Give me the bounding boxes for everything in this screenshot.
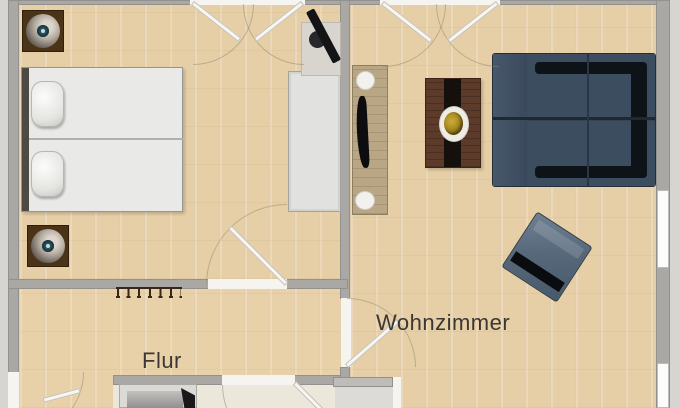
window-living-upper[interactable] [657, 190, 669, 268]
sideboard[interactable] [352, 65, 388, 215]
room-label-flur: Flur [142, 348, 182, 374]
room-label-wohnzimmer: Wohnzimmer [376, 310, 510, 336]
mattress-divider [29, 138, 183, 140]
wardrobe[interactable] [288, 71, 341, 212]
nightstand-bottom[interactable] [27, 225, 69, 267]
wall-top [8, 0, 657, 5]
sofa[interactable] [492, 53, 656, 187]
floor-plan: Wohnzimmer Flur [0, 0, 680, 408]
window-living-lower[interactable] [657, 363, 669, 408]
double-bed[interactable] [21, 67, 183, 212]
pillow [31, 81, 64, 127]
decor-plate [355, 191, 375, 210]
lamp-icon [31, 229, 65, 263]
room-lower-right-floor [335, 387, 393, 408]
wall-bedroom-living [340, 0, 350, 299]
wall-left [8, 0, 19, 408]
coat-rack-icon[interactable] [116, 287, 182, 301]
sofa-seam [587, 54, 589, 186]
headboard [22, 68, 29, 211]
decor-plate [356, 71, 375, 90]
wall-lower-right-top [333, 377, 393, 387]
door-opening-flur-south [222, 375, 295, 385]
sofa-armrest [493, 54, 527, 186]
tv-icon [355, 96, 370, 168]
sofa-seam [493, 117, 655, 120]
sofa-shadow [535, 166, 647, 178]
staircase[interactable] [119, 384, 197, 408]
coffee-table[interactable] [425, 78, 481, 168]
sofa-shadow [631, 64, 647, 178]
door-opening-entrance [8, 372, 19, 408]
lamp-icon [26, 14, 60, 48]
door-swing-arc [222, 385, 341, 408]
decor-bowl-icon [439, 106, 469, 142]
door-opening-living-bottom [393, 377, 401, 408]
nightstand-top[interactable] [22, 10, 64, 52]
pillow [31, 151, 64, 197]
